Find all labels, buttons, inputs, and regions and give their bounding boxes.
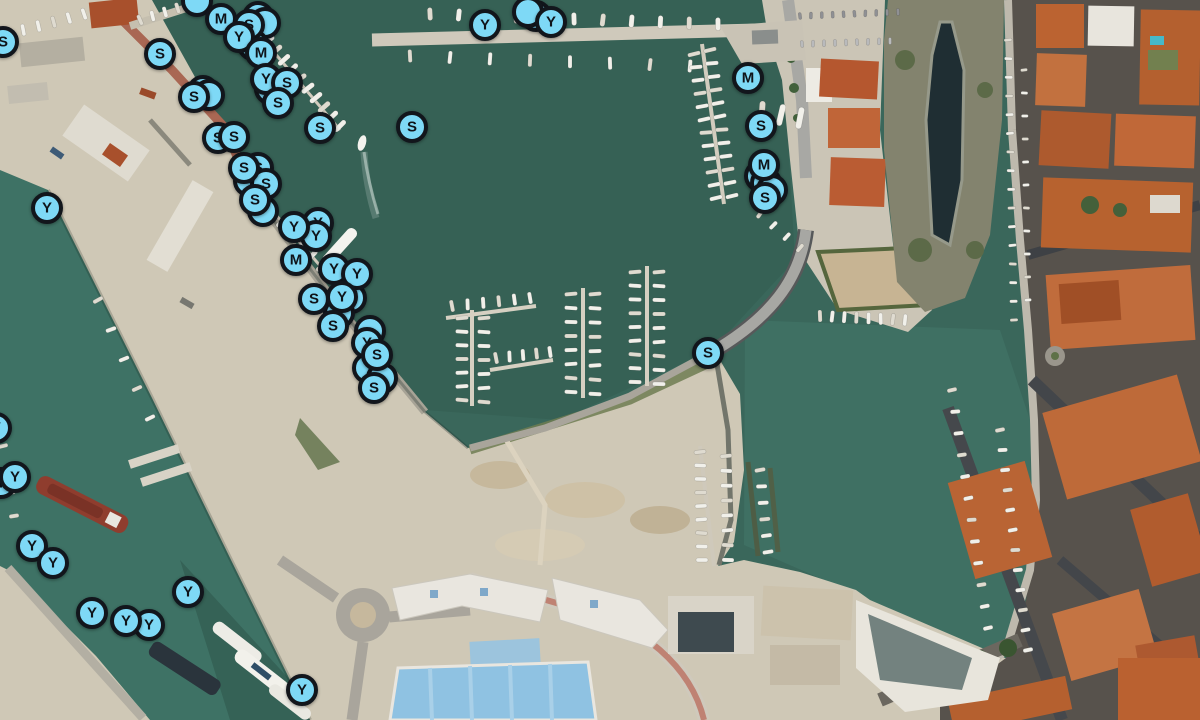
- map-pin-letter: M: [255, 45, 268, 60]
- map-pin-s[interactable]: S: [692, 337, 724, 369]
- map-pin-letter: S: [189, 89, 199, 104]
- map-pin-s[interactable]: S: [218, 121, 250, 153]
- map-pin-letter: M: [742, 70, 755, 85]
- map-pin-letter: S: [229, 129, 239, 144]
- map-pin-y[interactable]: Y: [110, 605, 142, 637]
- map-pin-s[interactable]: S: [749, 182, 781, 214]
- map-pin-y[interactable]: Y: [326, 281, 358, 313]
- map-pin-y[interactable]: Y: [0, 461, 31, 493]
- map-pin-y[interactable]: Y: [172, 576, 204, 608]
- map-pin-letter: Y: [480, 17, 490, 32]
- map-pin-s[interactable]: S: [396, 111, 428, 143]
- map-pin-letter: Y: [183, 584, 193, 599]
- map-pin-m[interactable]: M: [748, 149, 780, 181]
- map-pin-letter: S: [250, 192, 260, 207]
- map-markers-layer: YYSSSSMSYMSYSSSSSSSSYYSMSMSMYYYSYSYSSYYY…: [0, 0, 1200, 720]
- map-pin-s[interactable]: S: [745, 110, 777, 142]
- map-pin-y[interactable]: Y: [76, 597, 108, 629]
- map-pin-s[interactable]: S: [144, 38, 176, 70]
- map-pin-s[interactable]: S: [239, 184, 271, 216]
- map-pin-y[interactable]: Y: [278, 211, 310, 243]
- map-pin-letter: Y: [121, 613, 131, 628]
- map-pin-letter: S: [369, 380, 379, 395]
- map-pin-letter: S: [155, 46, 165, 61]
- map-pin-letter: Y: [261, 71, 271, 86]
- map-pin-letter: S: [315, 120, 325, 135]
- map-pin-s[interactable]: S: [178, 81, 210, 113]
- map-pin-letter: Y: [311, 228, 321, 243]
- map-pin-s[interactable]: S: [358, 372, 390, 404]
- map-pin-s[interactable]: S: [304, 112, 336, 144]
- map-pin-letter: M: [758, 157, 771, 172]
- map-pin-s[interactable]: S: [0, 26, 19, 58]
- map-pin-letter: Y: [10, 469, 20, 484]
- map-pin-letter: M: [215, 11, 228, 26]
- map-pin-letter: S: [407, 119, 417, 134]
- map-pin-s[interactable]: S: [262, 87, 294, 119]
- map-pin-m[interactable]: M: [280, 244, 312, 276]
- map-pin-letter: Y: [337, 289, 347, 304]
- map-pin-letter: Y: [87, 605, 97, 620]
- map-pin-letter: Y: [0, 420, 1, 435]
- map-canvas[interactable]: YYSSSSMSYMSYSSSSSSSSYYSMSMSMYYYSYSYSSYYY…: [0, 0, 1200, 720]
- map-pin-letter: Y: [48, 555, 58, 570]
- map-pin-letter: Y: [289, 219, 299, 234]
- map-pin-letter: S: [756, 118, 766, 133]
- map-pin-letter: Y: [42, 200, 52, 215]
- map-pin-letter: S: [273, 95, 283, 110]
- map-pin-letter: Y: [27, 538, 37, 553]
- map-pin-letter: M: [290, 252, 303, 267]
- map-pin-letter: S: [239, 160, 249, 175]
- map-pin-letter: S: [0, 34, 8, 49]
- map-pin-letter: Y: [144, 617, 154, 632]
- map-pin-m[interactable]: M: [732, 62, 764, 94]
- map-pin-letter: S: [372, 347, 382, 362]
- map-pin-letter: S: [328, 318, 338, 333]
- map-pin-letter: Y: [329, 261, 339, 276]
- map-pin-s[interactable]: S: [361, 339, 393, 371]
- map-pin-letter: Y: [234, 29, 244, 44]
- map-pin-y[interactable]: Y: [535, 6, 567, 38]
- map-pin-letter: Y: [352, 266, 362, 281]
- map-pin-y[interactable]: Y: [37, 547, 69, 579]
- map-pin-letter: Y: [546, 14, 556, 29]
- map-pin-s[interactable]: S: [317, 310, 349, 342]
- map-pin-letter: S: [309, 291, 319, 306]
- map-pin-y[interactable]: Y: [286, 674, 318, 706]
- map-pin-y[interactable]: Y: [469, 9, 501, 41]
- map-pin-letter: S: [760, 190, 770, 205]
- map-pin-letter: Y: [297, 682, 307, 697]
- map-pin-letter: S: [703, 345, 713, 360]
- map-pin-y[interactable]: Y: [0, 412, 12, 444]
- map-pin-y[interactable]: Y: [31, 192, 63, 224]
- map-pin-s[interactable]: S: [228, 152, 260, 184]
